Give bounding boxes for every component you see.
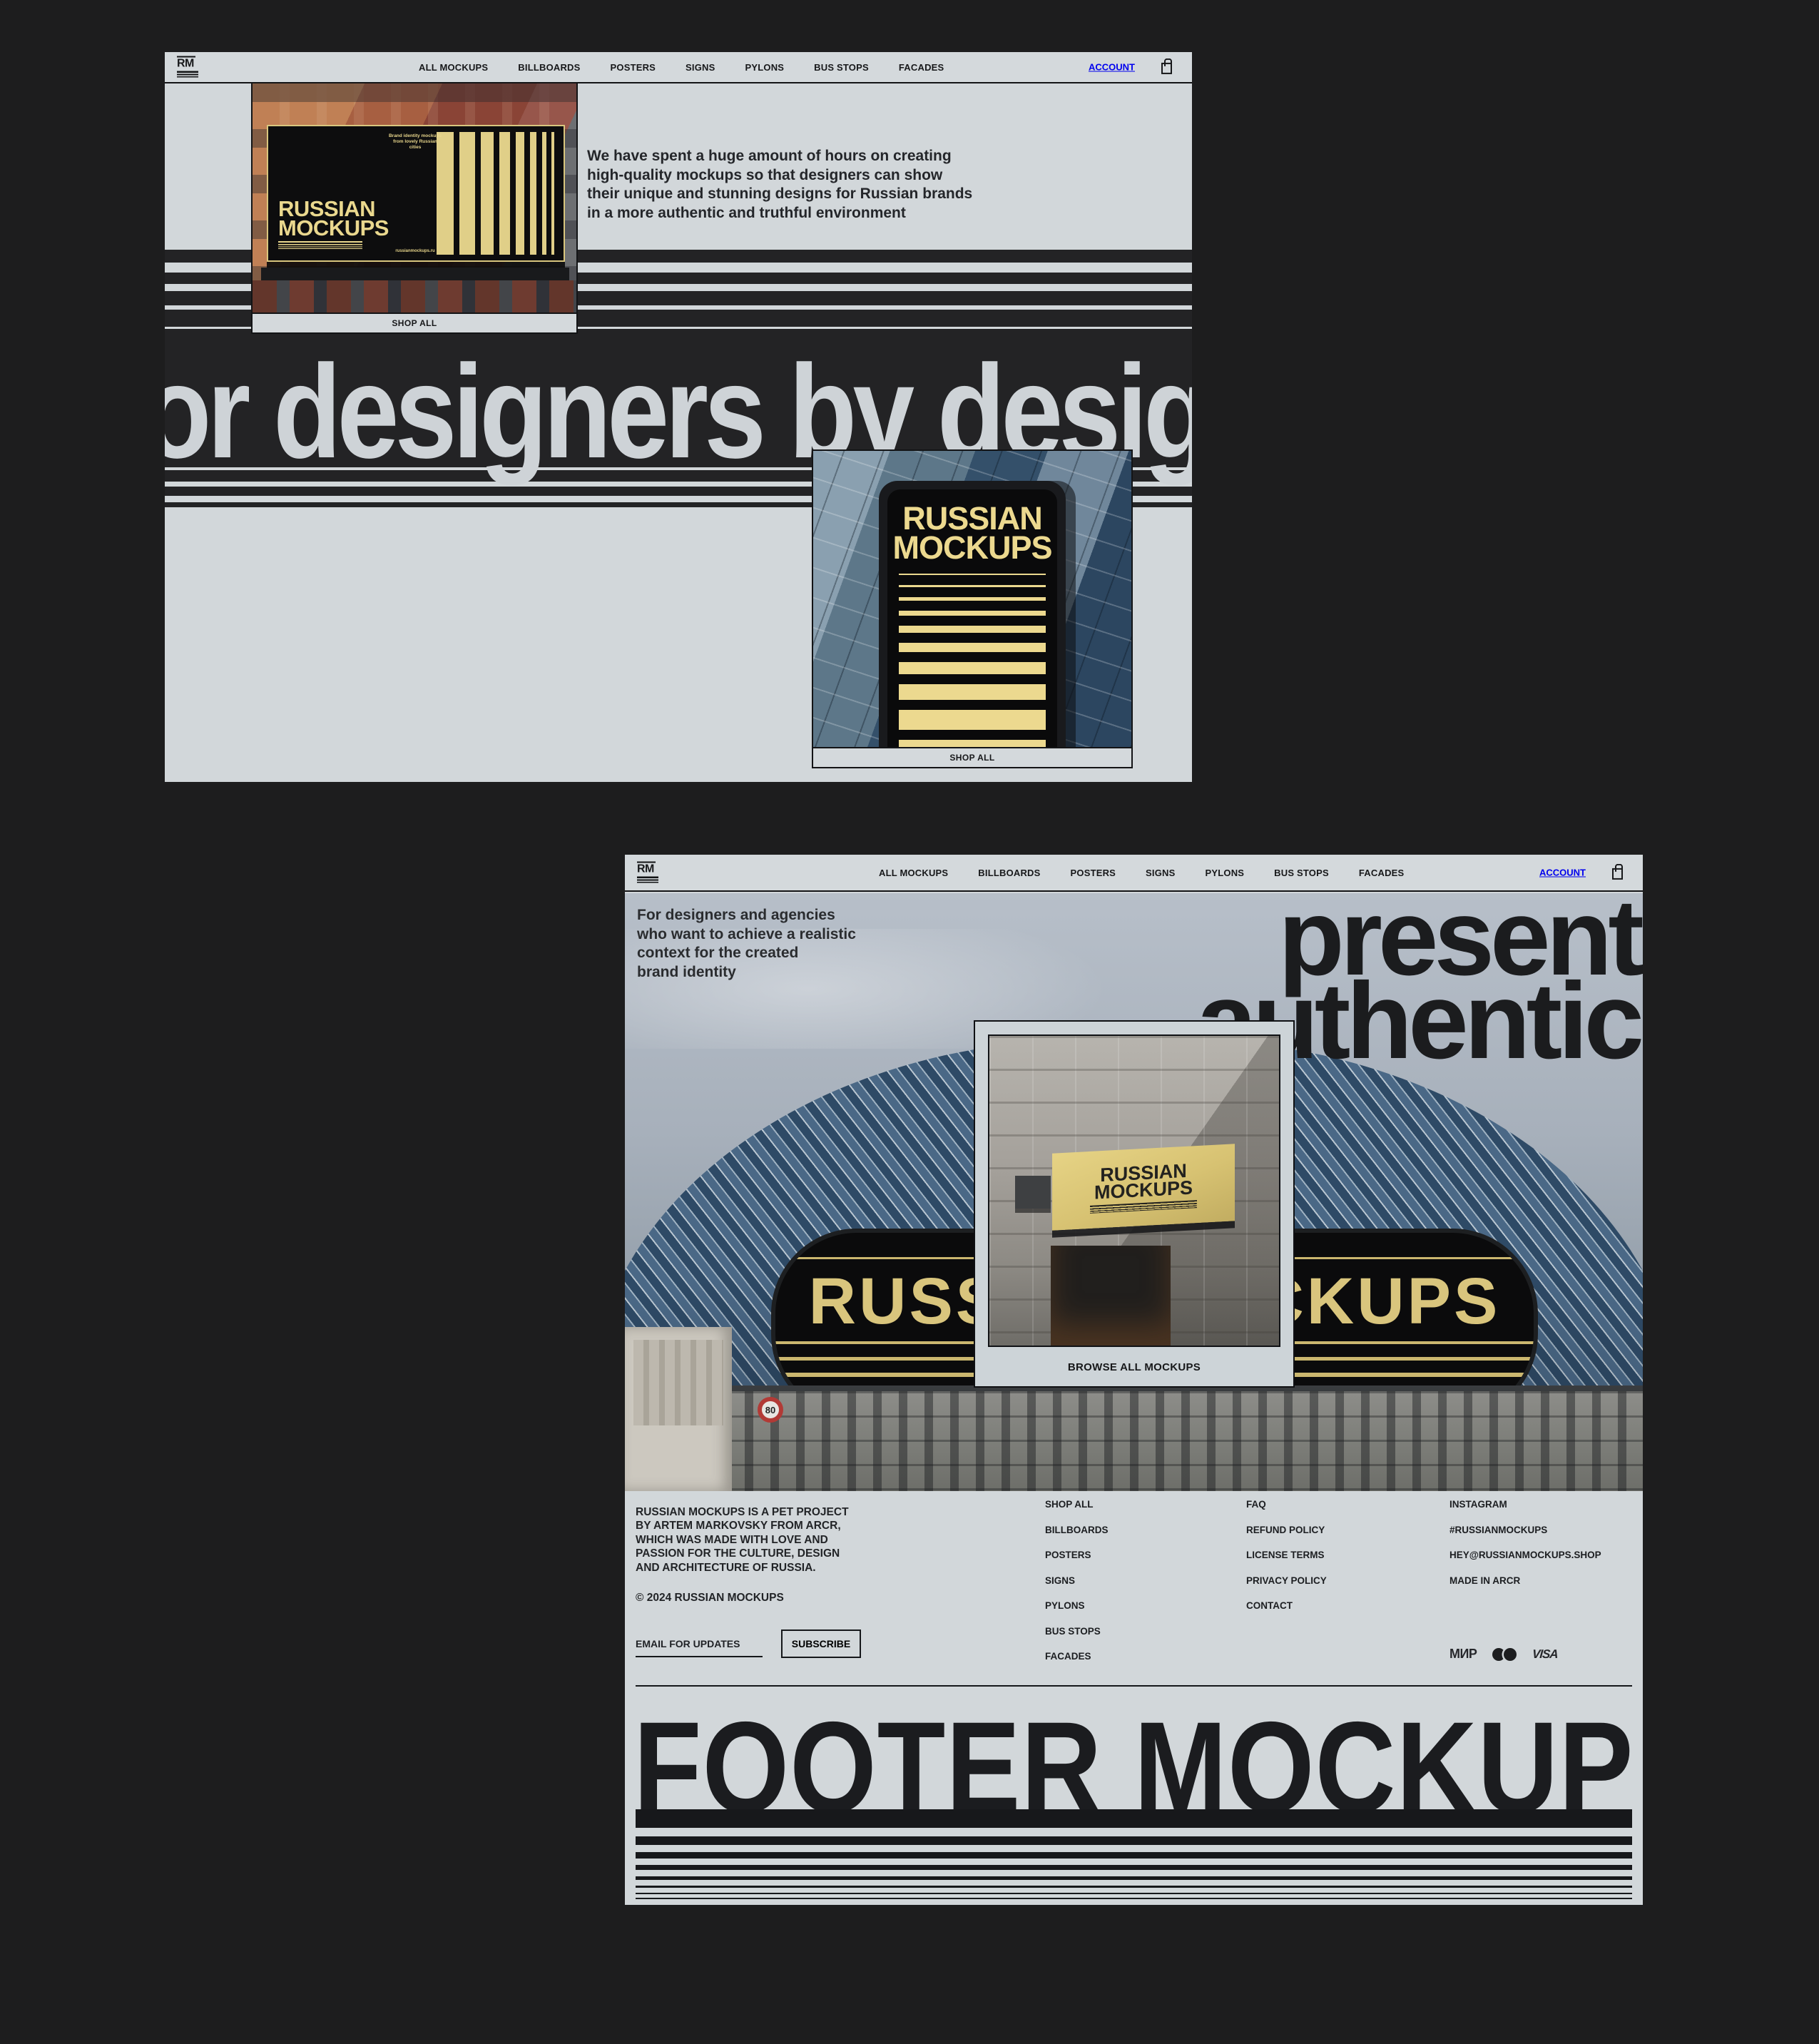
main-nav: ALL MOCKUPS BILLBOARDS POSTERS SIGNS PYL… xyxy=(419,52,944,82)
nav-all-mockups[interactable]: ALL MOCKUPS xyxy=(419,62,488,73)
site-header: RM ALL MOCKUPS BILLBOARDS POSTERS SIGNS … xyxy=(625,855,1643,892)
footer-link-email[interactable]: HEY@RUSSIANMOCKUPS.SHOP xyxy=(1449,1550,1601,1560)
main-nav: ALL MOCKUPS BILLBOARDS POSTERS SIGNS PYL… xyxy=(879,855,1404,890)
shopping-bag-icon[interactable] xyxy=(1612,868,1623,880)
footer-link-facades[interactable]: FACADES xyxy=(1045,1651,1109,1662)
footer-link-faq[interactable]: FAQ xyxy=(1246,1499,1327,1510)
intro-paragraph: For designers and agencies who want to a… xyxy=(637,906,856,982)
billboard-panel: RUSSIAN MOCKUPS Brand identity mockups f… xyxy=(267,125,565,262)
shopping-bag-icon[interactable] xyxy=(1161,63,1172,74)
bottom-page-screenshot: RM ALL MOCKUPS BILLBOARDS POSTERS SIGNS … xyxy=(625,855,1643,1905)
footer-about-text: RUSSIAN MOCKUPS IS A PET PROJECT BY ARTE… xyxy=(636,1505,849,1575)
nav-billboards[interactable]: BILLBOARDS xyxy=(518,62,580,73)
account-link[interactable]: ACCOUNT xyxy=(1539,868,1586,878)
pylon-mockup-card[interactable]: RUSSIAN MOCKUPS SHOP ALL xyxy=(812,449,1133,768)
nav-pylons[interactable]: PYLONS xyxy=(1206,868,1245,878)
footer-link-made-in-arcr[interactable]: MADE IN ARCR xyxy=(1449,1575,1601,1586)
footer-link-signs[interactable]: SIGNS xyxy=(1045,1575,1109,1586)
mir-logo: МИР xyxy=(1449,1647,1477,1662)
nav-all-mockups[interactable]: ALL MOCKUPS xyxy=(879,868,948,878)
footer-link-refund-policy[interactable]: REFUND POLICY xyxy=(1246,1525,1327,1535)
presentation-canvas: or designers by desigr RM ALL MOCKUPS BI… xyxy=(0,0,1819,2044)
brand-lines-icon xyxy=(278,241,362,249)
nav-facades[interactable]: FACADES xyxy=(899,62,944,73)
subscribe-button[interactable]: SUBSCRIBE xyxy=(781,1629,861,1658)
logo-lines-icon xyxy=(177,71,198,78)
nav-signs[interactable]: SIGNS xyxy=(686,62,715,73)
storefront-photo: RUSSIAN MOCKUPS xyxy=(988,1034,1280,1347)
street-level-texture xyxy=(253,280,576,314)
hero-paragraph: We have spent a huge amount of hours on … xyxy=(587,147,1029,223)
pylon-screen: RUSSIAN MOCKUPS xyxy=(887,489,1057,748)
speed-limit-sign: 80 xyxy=(758,1397,783,1423)
footer-link-instagram[interactable]: INSTAGRAM xyxy=(1449,1499,1601,1510)
browse-mockups-card[interactable]: RUSSIAN MOCKUPS BROWSE ALL MOCKUPS xyxy=(974,1020,1295,1388)
payment-methods: МИР VISA xyxy=(1449,1647,1558,1662)
footer-divider xyxy=(636,1685,1632,1687)
footer-column-legal: FAQ REFUND POLICY LICENSE TERMS PRIVACY … xyxy=(1246,1499,1327,1611)
shop-doorway xyxy=(1051,1246,1171,1346)
pylon-horizontal-bars xyxy=(899,574,1046,748)
pylon-brand-text: RUSSIAN MOCKUPS xyxy=(887,504,1057,562)
footer-lines-motif xyxy=(636,1809,1632,1899)
copyright: © 2024 RUSSIAN MOCKUPS xyxy=(636,1592,784,1605)
newsletter-row: EMAIL FOR UPDATES SUBSCRIBE xyxy=(636,1638,763,1657)
site-footer: RUSSIAN MOCKUPS IS A PET PROJECT BY ARTE… xyxy=(625,1491,1643,1905)
stadium-hero: RUSSIAN MOCKUPS 80 For designers and age… xyxy=(625,893,1643,1491)
nav-pylons[interactable]: PYLONS xyxy=(745,62,785,73)
footer-link-posters[interactable]: POSTERS xyxy=(1045,1550,1109,1560)
nav-bus-stops[interactable]: BUS STOPS xyxy=(814,62,869,73)
shop-all-button[interactable]: SHOP ALL xyxy=(253,312,576,332)
nav-facades[interactable]: FACADES xyxy=(1359,868,1405,878)
nav-billboards[interactable]: BILLBOARDS xyxy=(978,868,1040,878)
storefront-sign-text: RUSSIAN MOCKUPS xyxy=(1094,1161,1193,1201)
account-link[interactable]: ACCOUNT xyxy=(1089,62,1135,73)
browse-all-mockups-button[interactable]: BROWSE ALL MOCKUPS xyxy=(975,1361,1293,1373)
pylon-photo: RUSSIAN MOCKUPS xyxy=(813,451,1131,748)
footer-link-pylons[interactable]: PYLONS xyxy=(1045,1600,1109,1611)
footer-link-license-terms[interactable]: LICENSE TERMS xyxy=(1246,1550,1327,1560)
footer-link-shop-all[interactable]: SHOP ALL xyxy=(1045,1499,1109,1510)
nav-signs[interactable]: SIGNS xyxy=(1146,868,1175,878)
billboard-brand-text: RUSSIAN MOCKUPS xyxy=(278,199,389,249)
mastercard-circles-icon xyxy=(1492,1648,1517,1661)
billboard-photo: RUSSIAN MOCKUPS Brand identity mockups f… xyxy=(253,83,576,314)
shop-all-button[interactable]: SHOP ALL xyxy=(813,747,1131,767)
classical-building xyxy=(625,1327,732,1491)
footer-link-hashtag[interactable]: #RUSSIANMOCKUPS xyxy=(1449,1525,1601,1535)
site-header: RM ALL MOCKUPS BILLBOARDS POSTERS SIGNS … xyxy=(165,52,1192,83)
email-updates-input[interactable]: EMAIL FOR UPDATES xyxy=(636,1638,763,1657)
billboard-mockup-card[interactable]: RUSSIAN MOCKUPS Brand identity mockups f… xyxy=(251,82,578,334)
wall-lamp xyxy=(1015,1176,1051,1209)
logo-rm[interactable]: RM xyxy=(177,56,201,78)
footer-column-shop: SHOP ALL BILLBOARDS POSTERS SIGNS PYLONS… xyxy=(1045,1499,1109,1662)
billboard-vertical-bars xyxy=(437,132,558,255)
footer-link-privacy-policy[interactable]: PRIVACY POLICY xyxy=(1246,1575,1327,1586)
visa-logo: VISA xyxy=(1532,1647,1559,1662)
nav-posters[interactable]: POSTERS xyxy=(611,62,656,73)
nav-bus-stops[interactable]: BUS STOPS xyxy=(1274,868,1329,878)
storefront-sign: RUSSIAN MOCKUPS xyxy=(1052,1144,1235,1230)
pylon-frame: RUSSIAN MOCKUPS xyxy=(879,481,1066,748)
footer-column-social: INSTAGRAM #RUSSIANMOCKUPS HEY@RUSSIANMOC… xyxy=(1449,1499,1601,1586)
logo-rm[interactable]: RM xyxy=(637,862,661,884)
logo-text: RM xyxy=(637,862,656,877)
footer-link-bus-stops[interactable]: BUS STOPS xyxy=(1045,1626,1109,1637)
logo-text: RM xyxy=(177,56,195,71)
billboard-understructure xyxy=(261,268,569,280)
nav-posters[interactable]: POSTERS xyxy=(1071,868,1116,878)
top-page-screenshot: or designers by desigr RM ALL MOCKUPS BI… xyxy=(165,52,1192,782)
footer-link-contact[interactable]: CONTACT xyxy=(1246,1600,1327,1611)
logo-lines-icon xyxy=(637,877,658,884)
footer-link-billboards[interactable]: BILLBOARDS xyxy=(1045,1525,1109,1535)
